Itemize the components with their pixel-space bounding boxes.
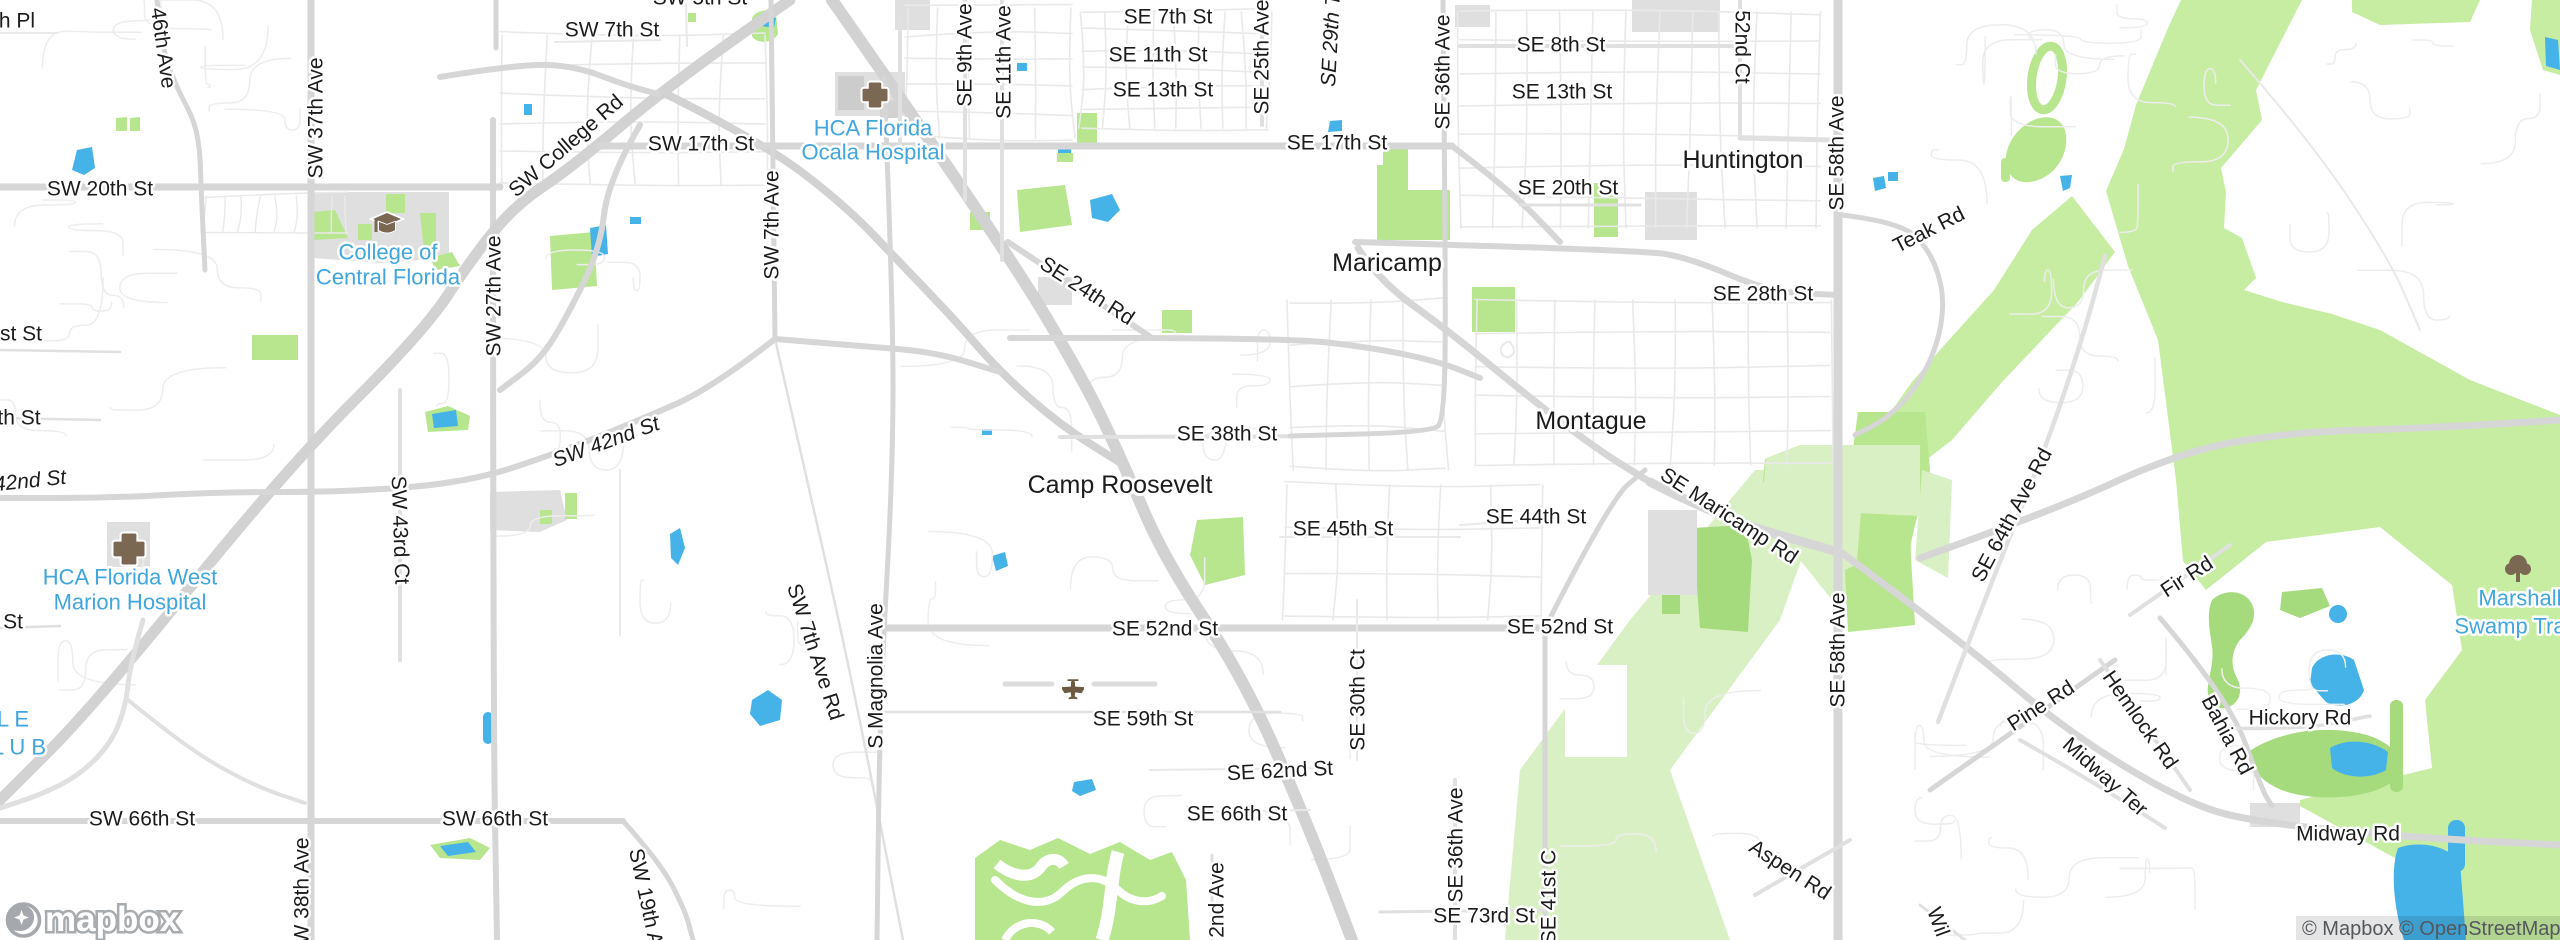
svg-text:st St: st St	[0, 323, 42, 346]
svg-text:Montague: Montague	[1535, 407, 1646, 435]
svg-text:SE 11th St: SE 11th St	[1109, 44, 1208, 67]
svg-text:SE 13th St: SE 13th St	[1512, 81, 1613, 104]
svg-text:SW 7th St: SW 7th St	[565, 19, 660, 42]
svg-text:Marion Hospital: Marion Hospital	[54, 590, 207, 615]
svg-text:SE 41st C: SE 41st C	[1538, 850, 1561, 940]
svg-text:Central Florida: Central Florida	[316, 265, 461, 290]
svg-text:SW 38th Ave: SW 38th Ave	[291, 837, 314, 940]
svg-text:SW 66th St: SW 66th St	[89, 808, 195, 831]
svg-text:h Pl: h Pl	[0, 10, 35, 33]
svg-text:Huntington: Huntington	[1683, 146, 1804, 174]
svg-text:SW 37th Ave: SW 37th Ave	[305, 57, 328, 178]
svg-text:th St: th St	[0, 407, 41, 430]
svg-text:SW 5th St: SW 5th St	[653, 0, 748, 10]
svg-text:SW 20th St: SW 20th St	[47, 178, 153, 201]
svg-text:St: St	[3, 611, 23, 634]
svg-text:SE 45th St: SE 45th St	[1293, 518, 1394, 541]
svg-text:© Mapbox © OpenStreetMap: © Mapbox © OpenStreetMap	[2302, 918, 2560, 940]
svg-text:HCA Florida West: HCA Florida West	[43, 565, 217, 590]
svg-text:SW 7th Ave: SW 7th Ave	[761, 170, 784, 279]
svg-text:Ocala Hospital: Ocala Hospital	[801, 140, 944, 165]
svg-text:SE 38th St: SE 38th St	[1177, 423, 1278, 446]
svg-text:SE 52nd St: SE 52nd St	[1112, 618, 1218, 641]
svg-text:2nd Ave: 2nd Ave	[1206, 862, 1229, 938]
svg-text:SE 28th St: SE 28th St	[1713, 283, 1814, 306]
svg-text:SE 25th Ave: SE 25th Ave	[1251, 0, 1274, 115]
svg-text:SE 17th St: SE 17th St	[1287, 132, 1388, 155]
svg-text:SE 7th St: SE 7th St	[1124, 6, 1213, 29]
svg-text:S Magnolia Ave: S Magnolia Ave	[865, 603, 888, 749]
svg-text:SE 36th Ave: SE 36th Ave	[1445, 787, 1468, 902]
svg-text:Camp Roosevelt: Camp Roosevelt	[1028, 471, 1213, 499]
svg-text:SE 20th St: SE 20th St	[1518, 177, 1619, 200]
svg-text:SE 44th St: SE 44th St	[1486, 506, 1587, 529]
svg-text:SE 36th Ave: SE 36th Ave	[1432, 14, 1455, 129]
svg-text:HCA Florida: HCA Florida	[814, 116, 933, 141]
svg-text:SE 9th Ave: SE 9th Ave	[954, 3, 977, 107]
svg-text:SW 17th St: SW 17th St	[648, 133, 754, 156]
svg-text:mapbox: mapbox	[45, 900, 180, 939]
svg-text:Marshall: Marshall	[2478, 586, 2560, 611]
svg-text:SE 8th St: SE 8th St	[1517, 34, 1606, 57]
svg-text:Maricamp: Maricamp	[1332, 249, 1442, 277]
svg-text:52nd Ct: 52nd Ct	[1731, 10, 1754, 84]
svg-text:SE 73rd St: SE 73rd St	[1433, 905, 1535, 928]
svg-text:Swamp Tra: Swamp Tra	[2454, 614, 2560, 639]
svg-text:SW 43rd Ct: SW 43rd Ct	[387, 475, 414, 584]
svg-text:SW 66th St: SW 66th St	[442, 808, 548, 831]
svg-text:SE 59th St: SE 59th St	[1093, 708, 1194, 731]
svg-text:SE 58th Ave: SE 58th Ave	[1827, 592, 1850, 707]
svg-text:SE 66th St: SE 66th St	[1187, 803, 1288, 826]
svg-text:Hickory Rd: Hickory Rd	[2249, 707, 2352, 730]
svg-text:Midway Rd: Midway Rd	[2296, 823, 2400, 846]
svg-text:L U B: L U B	[0, 735, 46, 760]
svg-text:SW 27th Ave: SW 27th Ave	[483, 235, 506, 356]
svg-text:L E: L E	[0, 707, 29, 732]
svg-text:SE 13th St: SE 13th St	[1113, 79, 1214, 102]
svg-text:SE 11th Ave: SE 11th Ave	[993, 5, 1016, 119]
svg-text:SE 30th Ct: SE 30th Ct	[1347, 649, 1370, 751]
svg-text:SE 52nd St: SE 52nd St	[1507, 616, 1613, 639]
svg-text:SE 58th Ave: SE 58th Ave	[1826, 95, 1849, 210]
svg-text:College of: College of	[338, 240, 438, 265]
